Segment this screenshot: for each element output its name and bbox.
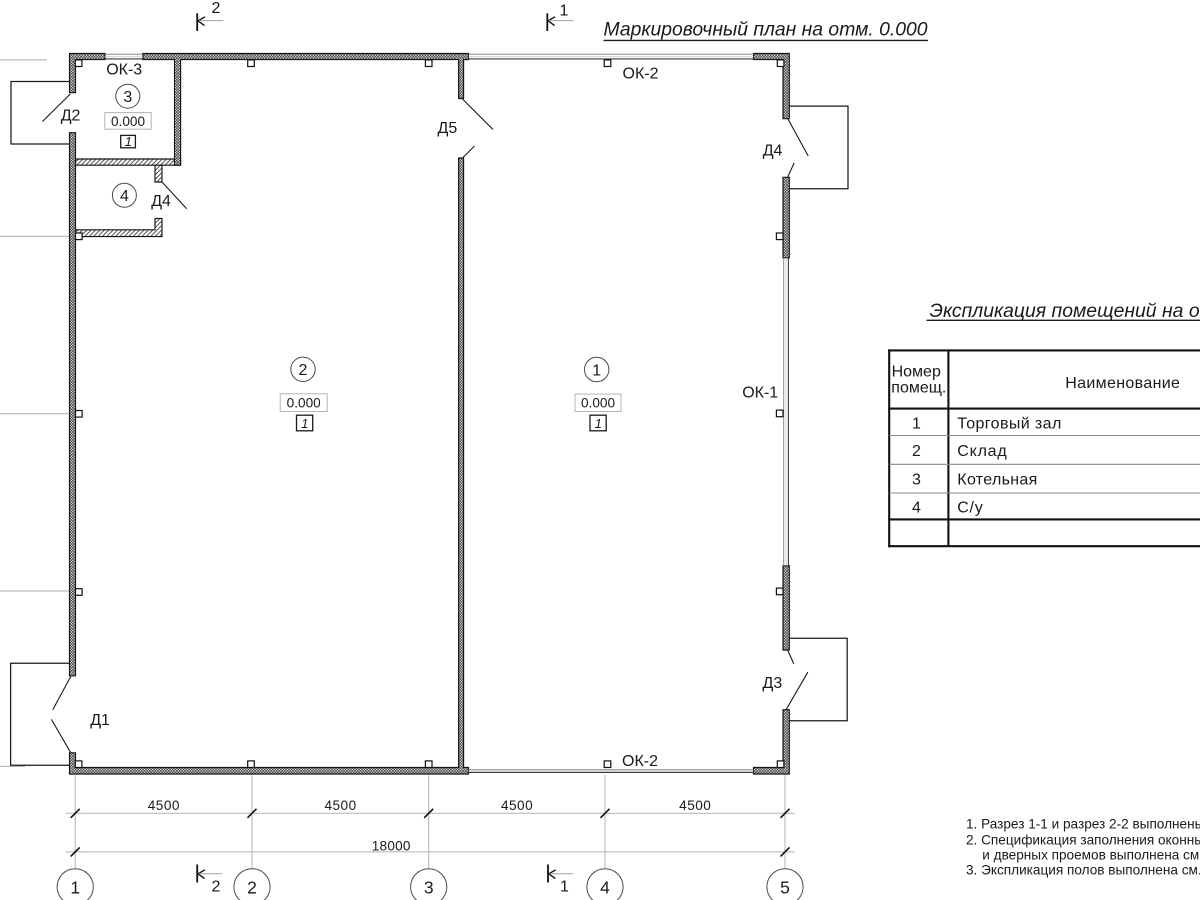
svg-text:4: 4: [120, 188, 129, 205]
svg-text:0.000: 0.000: [287, 396, 321, 411]
svg-text:Д1: Д1: [90, 712, 110, 729]
svg-text:1: 1: [592, 362, 601, 379]
svg-text:2: 2: [212, 0, 221, 17]
svg-text:Д4: Д4: [763, 143, 783, 160]
svg-text:5: 5: [780, 877, 790, 897]
svg-text:Д2: Д2: [61, 108, 81, 125]
svg-text:Маркировочный план на отм. 0.0: Маркировочный план на отм. 0.000: [604, 18, 928, 40]
svg-text:3: 3: [912, 472, 921, 489]
svg-text:4500: 4500: [679, 798, 711, 813]
svg-text:1. Разрез 1-1 и разрез 2-2 вып: 1. Разрез 1-1 и разрез 2-2 выполнены на …: [966, 817, 1200, 832]
svg-text:1: 1: [560, 3, 569, 20]
svg-text:1: 1: [70, 877, 80, 897]
svg-text:2. Спецификация заполнения око: 2. Спецификация заполнения оконных: [966, 832, 1200, 847]
svg-text:3. Экспликация полов выполнена: 3. Экспликация полов выполнена см. лист …: [966, 862, 1200, 877]
svg-text:4500: 4500: [148, 798, 180, 813]
svg-text:2: 2: [212, 878, 221, 895]
svg-text:3: 3: [424, 877, 434, 897]
svg-text:2: 2: [912, 443, 921, 460]
svg-text:Склад: Склад: [957, 443, 1007, 460]
svg-text:Д3: Д3: [763, 675, 783, 692]
svg-text:2: 2: [247, 877, 257, 897]
svg-text:0.000: 0.000: [581, 396, 615, 411]
svg-text:1: 1: [560, 878, 569, 895]
svg-text:1: 1: [912, 416, 921, 433]
svg-text:0.000: 0.000: [111, 114, 145, 129]
svg-text:Котельная: Котельная: [957, 472, 1037, 489]
svg-text:Экспликация помещений на отм.: Экспликация помещений на отм. 0.000: [930, 300, 1200, 322]
svg-text:1: 1: [125, 134, 132, 149]
svg-text:Торговый зал: Торговый зал: [957, 416, 1061, 433]
svg-text:ОК-3: ОК-3: [106, 61, 142, 78]
svg-text:4500: 4500: [324, 798, 356, 813]
svg-text:помещ.: помещ.: [891, 380, 946, 397]
svg-text:Д4: Д4: [151, 193, 171, 210]
svg-text:ОК-2: ОК-2: [622, 753, 658, 770]
svg-text:С/у: С/у: [957, 499, 982, 516]
svg-text:ОК-1: ОК-1: [742, 385, 778, 402]
svg-text:2: 2: [299, 362, 308, 379]
svg-text:4500: 4500: [501, 798, 533, 813]
svg-text:Наименование: Наименование: [1065, 375, 1180, 392]
svg-text:1: 1: [595, 416, 602, 431]
svg-text:3: 3: [123, 89, 132, 106]
svg-text:4: 4: [912, 499, 921, 516]
svg-text:4: 4: [600, 877, 610, 897]
svg-text:Д5: Д5: [438, 120, 458, 137]
svg-text:ОК-2: ОК-2: [623, 66, 659, 83]
svg-text:и дверных проемов выполнена см: и дверных проемов выполнена см. лист 5: [982, 848, 1200, 863]
svg-text:Номер: Номер: [892, 364, 941, 381]
svg-text:18000: 18000: [372, 838, 411, 853]
svg-text:1: 1: [301, 416, 308, 431]
